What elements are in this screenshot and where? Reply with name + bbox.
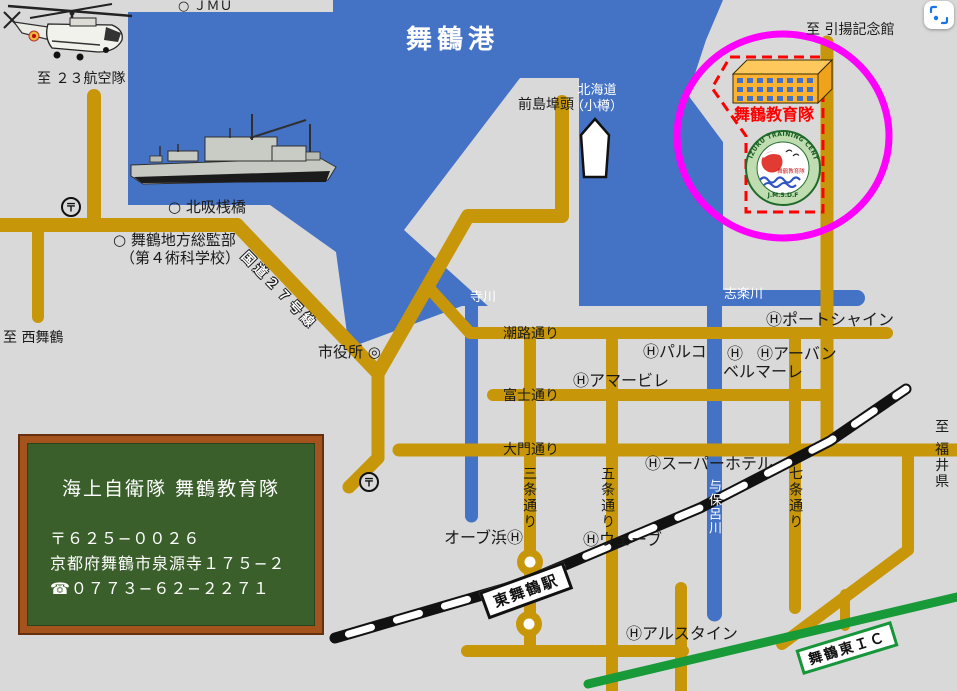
dest-fukui-label: 至 福井県 — [933, 419, 949, 489]
access-map: MAIZURU TRAINING CENTER 舞鶴教育隊 J.M.S.D.F — [0, 0, 957, 691]
training-center-label: 舞鶴教育隊 — [734, 106, 814, 124]
kitasui-pier-label: ○ 北吸桟橋 — [168, 199, 246, 216]
hotel-amabile-label: Ⓗアマービレ — [573, 372, 669, 390]
daimon-street-label: 大門通り — [503, 442, 559, 458]
post-office-icon: 〒 — [61, 197, 81, 217]
gojo-street-label: 五条通り — [599, 466, 615, 530]
helicopter-illustration — [4, 4, 132, 61]
fuji-street-label: 富士通り — [503, 388, 559, 404]
shirakugawa-label: 志楽川 — [724, 288, 763, 303]
railway-line — [335, 389, 906, 638]
hotel-port-shine-label: Ⓗポートシャイン — [766, 311, 894, 329]
barracks-building — [733, 60, 832, 103]
maejima-wharf-label: 前島埠頭 — [518, 97, 574, 113]
hotel-parco-label: Ⓗパルコ — [643, 343, 707, 361]
port-name-label: 舞鶴港 — [406, 26, 499, 56]
post-office-icon: 〒 — [359, 472, 379, 492]
sanjo-street-label: 三条通り — [521, 466, 537, 530]
emblem-inner-text: 舞鶴教育隊 — [777, 167, 805, 175]
info-board-title: 海上自衛隊 舞鶴教育隊 — [34, 474, 308, 501]
shichijo-street-label: 七条通り — [787, 466, 803, 530]
roundabout-south — [516, 611, 542, 637]
hotel-alstein-label: Ⓗアルスタイン — [626, 625, 738, 643]
ferry-dest-line2: （小樽） — [567, 100, 627, 115]
hotel-super-hotel-label: Ⓗスーパーホテル — [645, 455, 773, 473]
info-board-phone: ☎０７７３−６２−２２７１ — [50, 577, 308, 602]
shioji-street-label: 潮路通り — [503, 326, 559, 342]
district-hq-label-line1: ○ 舞鶴地方総監部 — [113, 232, 236, 249]
info-board-postal: 〒６２５−００２６ — [50, 527, 308, 552]
hotel-orb-hama-label: オーブ浜Ⓗ — [444, 529, 523, 547]
terakawa-label: 寺川 — [470, 291, 496, 306]
yohorogawa-label: 与保呂川 — [705, 479, 720, 535]
city-hall-label: 市役所 ◎ — [318, 344, 381, 361]
screenshot-tool-icon — [929, 5, 949, 25]
info-board: 海上自衛隊 舞鶴教育隊 〒６２５−００２６ 京都府舞鶴市泉源寺１７５−２ ☎０７… — [18, 434, 324, 635]
hotel-urban-label: Ⓗアーバン — [757, 345, 837, 363]
hotel-bellmare-label: ベルマーレ — [723, 363, 803, 381]
hotel-wave-label: Ⓗウェーブ — [583, 531, 662, 549]
jmu-label: ○ ＪＭＵ — [178, 0, 232, 15]
info-board-inner: 海上自衛隊 舞鶴教育隊 〒６２５−００２６ 京都府舞鶴市泉源寺１７５−２ ☎０７… — [27, 443, 315, 626]
emblem-bottom-text: J.M.S.D.F — [767, 192, 799, 199]
ferry-dest-line1: 北海道 — [567, 84, 627, 99]
dest-nishi-maizuru-label: 至 西舞鶴 — [3, 330, 63, 346]
screenshot-tool-button[interactable] — [924, 1, 954, 29]
info-board-address: 京都府舞鶴市泉源寺１７５−２ — [50, 552, 308, 577]
district-hq-label-line2: （第４術科学校） — [120, 250, 240, 267]
hotel-mark-label: Ⓗ — [727, 345, 743, 363]
dest-air-squadron-label: 至 ２３航空隊 — [37, 71, 125, 87]
dest-hikiage-label: 至 引揚記念館 — [806, 22, 894, 38]
